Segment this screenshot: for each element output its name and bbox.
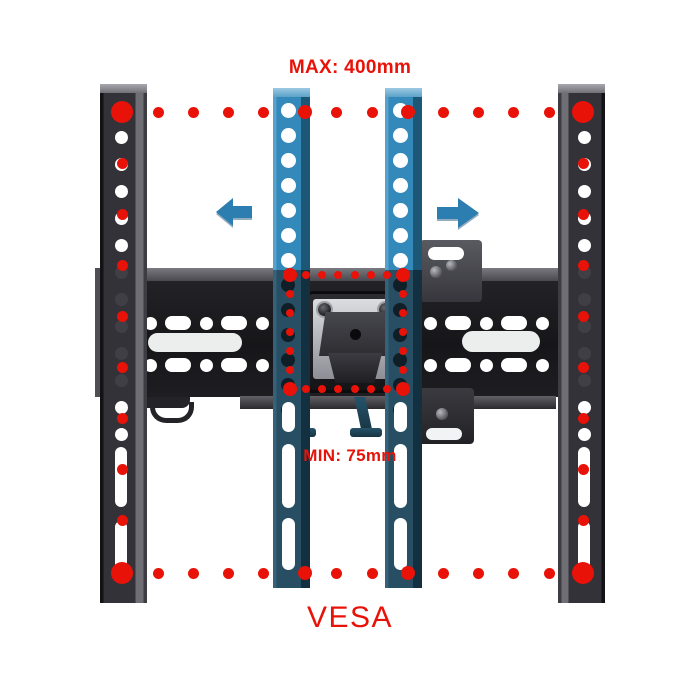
rail-hole [393,178,408,193]
plate-wide-slot [462,331,540,352]
rail-hole [578,185,591,198]
rail-hole [578,293,591,306]
rail-hole [578,320,591,333]
rail-top-cap [558,84,605,93]
rail-hole [115,104,128,117]
rail-slot [115,521,127,578]
wall-plate-top-bevel [95,268,568,282]
plate-slot [501,358,527,372]
bracket-slot [426,428,462,440]
arrow-left-icon [216,197,252,227]
rail-hole [115,293,128,306]
rail-hole [115,401,128,414]
rail-hole [578,158,591,171]
rail-hole [393,278,407,292]
rail-hole [115,158,128,171]
max-pattern-dot [258,107,269,118]
max-dimension-label: MAX: 400mm [0,57,700,79]
rail-hole [393,328,407,342]
rail-hole [115,428,128,441]
rail-hole [393,353,407,367]
max-pattern-dot [258,568,269,579]
rail-hole [281,203,296,218]
arrow-right-icon [437,196,479,230]
wall-bracket-top-right [420,240,482,302]
max-pattern-dot [331,568,342,579]
max-pattern-dot [367,107,378,118]
max-pattern-dot [473,568,484,579]
rail-hole [281,378,295,392]
max-pattern-dot [438,568,449,579]
max-pattern-dot [331,107,342,118]
max-pattern-dot [367,568,378,579]
tv-rail-blue-right [385,88,422,588]
rail-slot [394,518,407,570]
rail-hole [115,347,128,360]
rail-hole [578,428,591,441]
plate-wide-slot [148,333,242,352]
plate-slot [221,316,247,330]
rail-hole [115,185,128,198]
min-dimension-label: MIN: 75mm [0,446,700,466]
rail-hole [281,278,295,292]
arm-center-hole [350,329,361,340]
max-pattern-dot [223,107,234,118]
plate-hole [200,317,213,330]
rail-hole [281,353,295,367]
rail-hole [578,104,591,117]
rail-slot [282,518,295,570]
plate-hole [424,359,437,372]
max-pattern-dot [473,107,484,118]
rail-top-cap [273,88,310,97]
rail-hole [115,239,128,252]
plate-hole [536,359,549,372]
rail-hole [393,253,408,268]
screw-icon [436,408,448,420]
rail-hole [281,253,296,268]
rail-hole [578,212,591,225]
rail-hole [281,103,296,118]
max-pattern-dot [438,107,449,118]
rail-hole [393,378,407,392]
arm-mid-plate [319,312,391,356]
bracket-slot [428,247,464,260]
tv-rail-black-left [100,84,147,603]
max-pattern-dot [544,107,555,118]
screw-icon [446,260,457,271]
rail-hook-foot [350,428,382,437]
rail-hole [281,303,295,317]
max-pattern-dot [153,568,164,579]
max-pattern-dot [544,568,555,579]
plate-slot [221,358,247,372]
max-pattern-dot [153,107,164,118]
max-pattern-dot [223,568,234,579]
max-pattern-dot [188,568,199,579]
rail-hole [281,128,296,143]
rail-top-cap [385,88,422,97]
rail-hole [281,178,296,193]
plate-hole [256,359,269,372]
rail-hole [393,128,408,143]
plate-slot [445,358,471,372]
rail-hole [578,401,591,414]
wall-bracket-bottom-right [414,388,474,444]
rail-hole [393,303,407,317]
rail-hole [578,131,591,144]
plate-hole [536,317,549,330]
rail-hole [393,228,408,243]
rail-hole [281,228,296,243]
plate-slot [501,316,527,330]
rail-hole [578,347,591,360]
arm-lower-plate [328,353,382,383]
rail-slot [282,402,295,432]
plate-hole [200,359,213,372]
tv-rail-blue-left [273,88,310,588]
max-pattern-dot [508,568,519,579]
rail-slot [578,521,590,578]
plate-slot [165,358,191,372]
plate-hole [256,317,269,330]
rail-hole [578,239,591,252]
rail-hole [115,374,128,387]
plate-slot [445,316,471,330]
rail-hole [115,212,128,225]
plate-hole [424,317,437,330]
rail-top-cap [100,84,147,93]
rail-hole [281,328,295,342]
screw-icon [430,266,442,278]
rail-slot [394,402,407,432]
hook-bottom-left-curve [150,402,194,423]
vesa-mount-diagram: MAX: 400mm [0,0,700,700]
rail-hole [578,266,591,279]
vesa-label: VESA [0,601,700,635]
plate-slot [165,316,191,330]
rail-hole [115,131,128,144]
max-pattern-dot [508,107,519,118]
rail-hole [115,266,128,279]
max-pattern-dot [188,107,199,118]
rail-hole [281,153,296,168]
rail-hole [578,374,591,387]
rail-hole [393,203,408,218]
rail-hole [115,320,128,333]
plate-hole [480,317,493,330]
plate-hole [480,359,493,372]
tv-rail-black-right [558,84,605,603]
rail-hole [393,153,408,168]
rail-hole [393,103,408,118]
